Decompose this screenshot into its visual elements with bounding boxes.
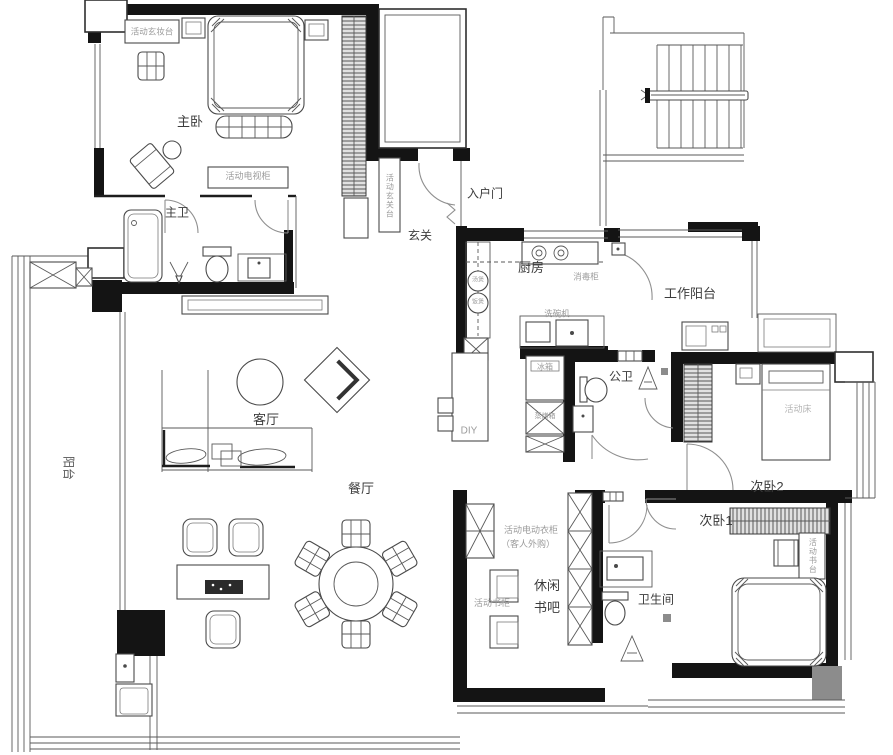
label-foyer: 玄关 bbox=[408, 229, 432, 242]
living-room-furniture bbox=[162, 347, 370, 472]
book-bar-furniture bbox=[466, 493, 592, 648]
floor-plan: 主卧 主卫 活动玄妆台 活动电视柜 活动玄关台 入户门 玄关 厨房 消毒柜 工作… bbox=[0, 0, 893, 755]
label-book-bar-1: 休闲 bbox=[534, 579, 560, 593]
dining-table-set bbox=[294, 520, 419, 648]
master-bath-fixtures bbox=[124, 210, 286, 283]
tea-table-set bbox=[177, 519, 269, 648]
label-work-balcony: 工作阳台 bbox=[664, 287, 716, 301]
work-balcony-fixtures bbox=[682, 322, 728, 350]
label-living-room: 客厅 bbox=[253, 413, 279, 427]
label-wardrobe-note-2: （客人外购） bbox=[501, 540, 555, 550]
staircase bbox=[600, 17, 748, 226]
label-steam-oven: 蒸烤箱 bbox=[535, 413, 556, 421]
label-sterilizer: 消毒柜 bbox=[573, 272, 599, 281]
label-balcony: 阳台 bbox=[61, 456, 74, 480]
label-dresser: 活动玄妆台 bbox=[131, 27, 174, 36]
label-desk: 活动书台 bbox=[808, 538, 817, 574]
label-book-bar-2: 书吧 bbox=[534, 601, 560, 615]
tv-console bbox=[182, 296, 328, 314]
bedroom1-furniture bbox=[730, 508, 830, 666]
label-tv-cabinet: 活动电视柜 bbox=[225, 172, 270, 182]
label-kitchen: 厨房 bbox=[518, 261, 544, 275]
label-master-bath: 主卫 bbox=[165, 206, 189, 219]
label-master-bedroom: 主卧 bbox=[177, 115, 203, 129]
label-guest-bath: 公卫 bbox=[609, 370, 633, 383]
label-entry-door: 入户门 bbox=[467, 187, 503, 200]
label-bookcase: 活动书柜 bbox=[474, 599, 510, 609]
label-bedroom2: 次卧2 bbox=[750, 480, 783, 494]
label-entry-console: 活动玄关台 bbox=[385, 174, 394, 219]
label-dining-room: 餐厅 bbox=[348, 482, 374, 496]
label-diy: DIY bbox=[461, 426, 478, 437]
label-soup-pot: 汤煲 bbox=[472, 278, 484, 285]
label-dishwasher: 洗碗机 bbox=[544, 309, 570, 318]
label-bathroom: 卫生间 bbox=[638, 593, 674, 606]
label-fridge: 冰箱 bbox=[537, 364, 553, 373]
floorplan-drawing bbox=[0, 0, 893, 755]
label-bedroom1: 次卧1 bbox=[699, 514, 732, 528]
label-wardrobe-note-1: 活动电动衣柜 bbox=[504, 526, 558, 536]
label-rice-cooker: 饭煲 bbox=[472, 300, 484, 307]
label-movable-bed: 活动床 bbox=[784, 405, 811, 415]
